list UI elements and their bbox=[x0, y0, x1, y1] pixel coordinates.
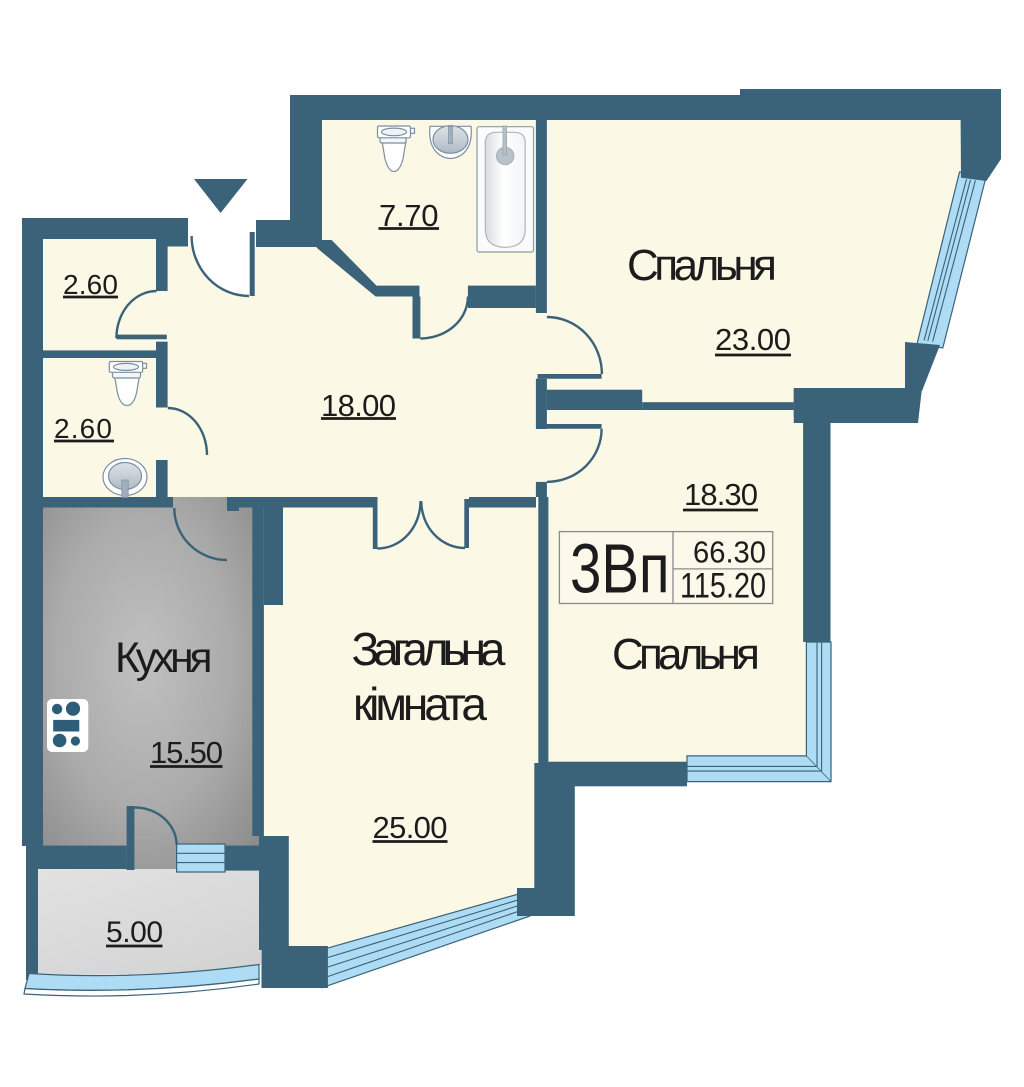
svg-text:Загальна: Загальна bbox=[352, 623, 506, 675]
svg-text:кімната: кімната bbox=[353, 678, 487, 730]
svg-text:2.60: 2.60 bbox=[63, 269, 118, 300]
svg-text:18.30: 18.30 bbox=[684, 477, 758, 512]
svg-text:Спальня: Спальня bbox=[612, 630, 760, 679]
svg-text:Кухня: Кухня bbox=[115, 635, 213, 682]
svg-text:Спальня: Спальня bbox=[627, 241, 777, 290]
svg-text:2.60: 2.60 bbox=[54, 413, 112, 444]
svg-text:5.00: 5.00 bbox=[106, 916, 163, 949]
svg-text:3Вп: 3Вп bbox=[570, 530, 670, 608]
svg-text:66.30: 66.30 bbox=[693, 535, 766, 570]
svg-text:115.20: 115.20 bbox=[680, 567, 766, 606]
svg-text:25.00: 25.00 bbox=[373, 810, 448, 845]
svg-text:23.00: 23.00 bbox=[715, 322, 791, 357]
svg-text:15.50: 15.50 bbox=[150, 735, 223, 770]
